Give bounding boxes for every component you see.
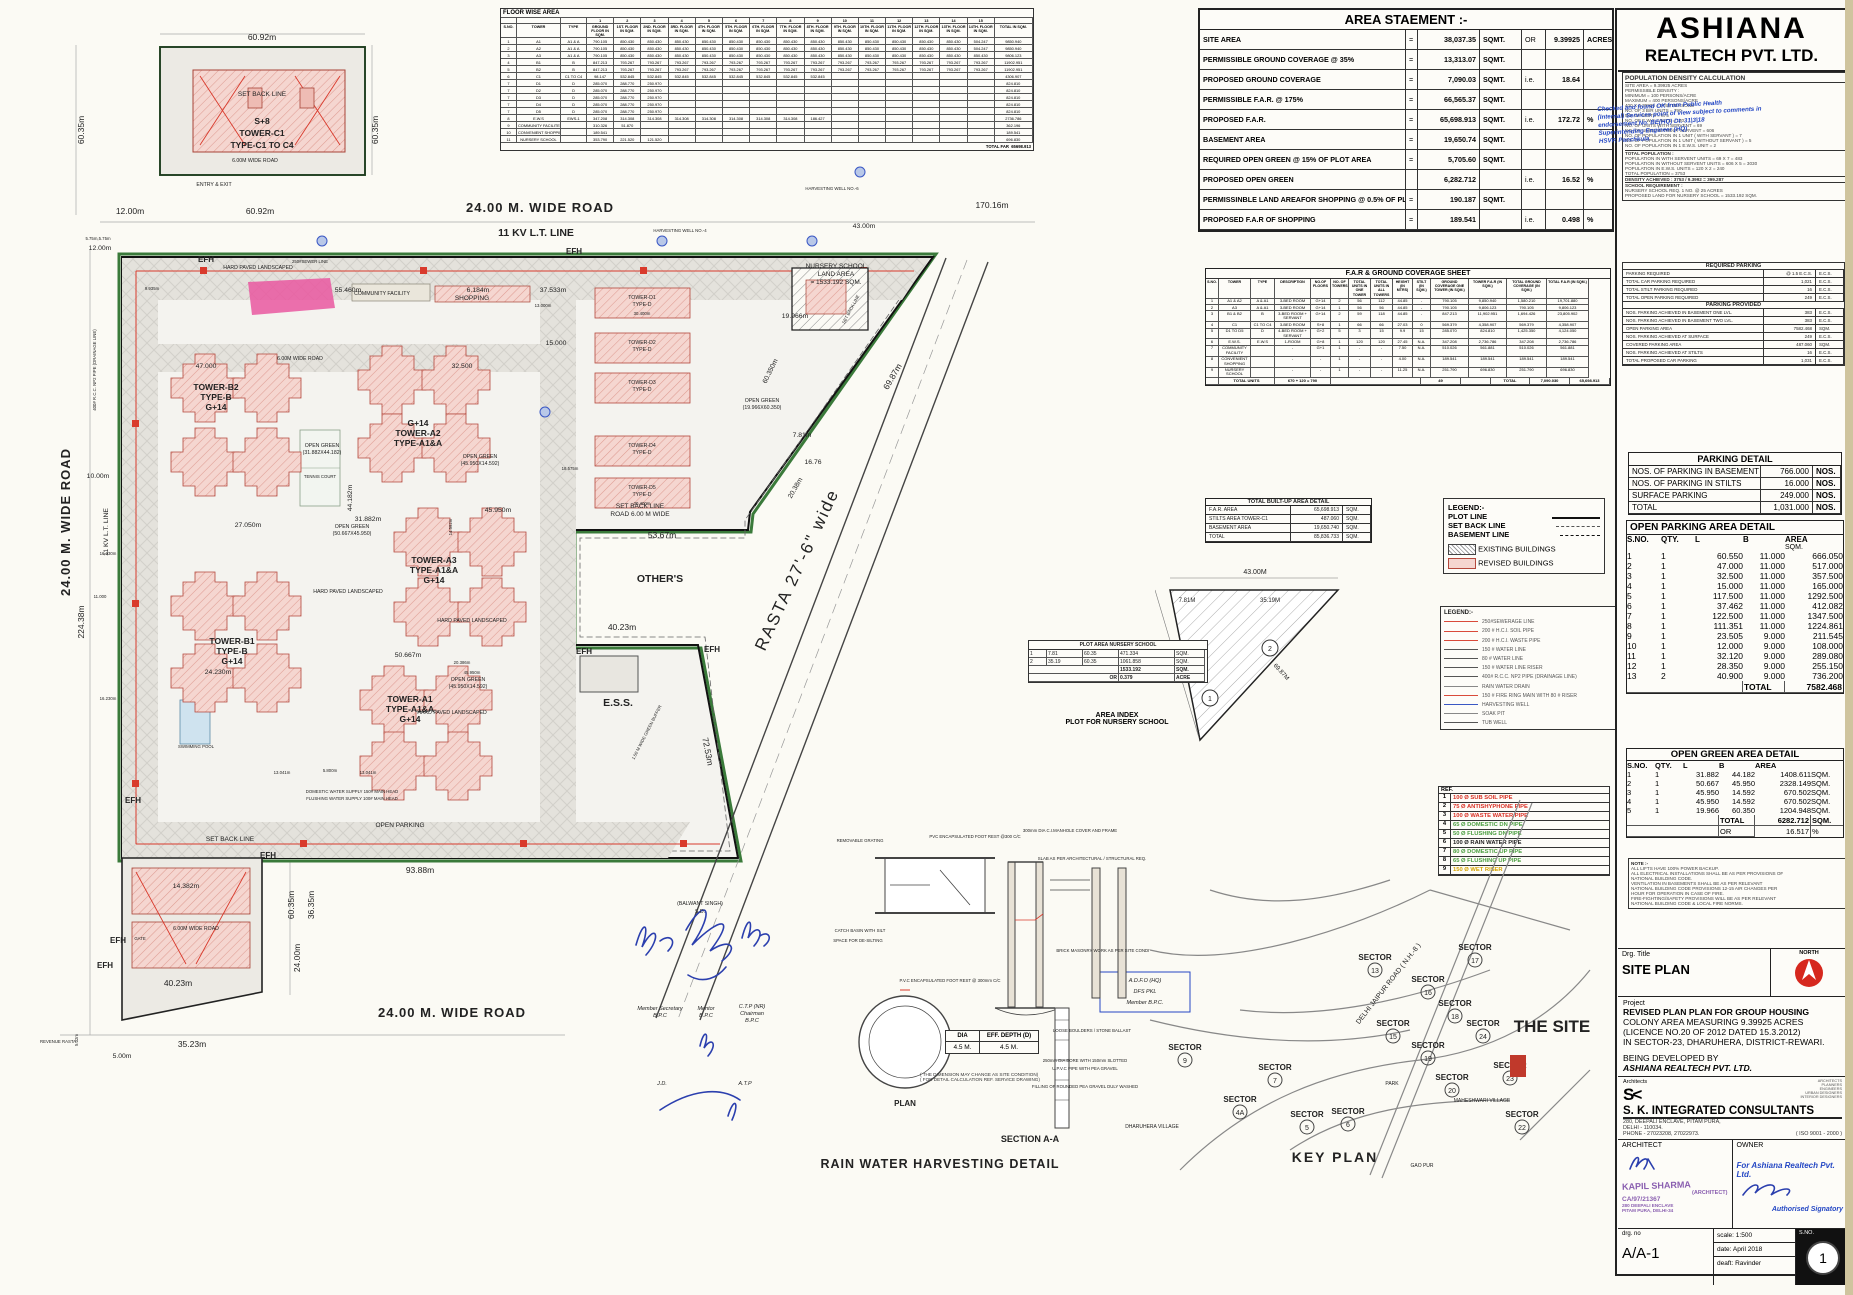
cell: 15: [1413, 329, 1431, 340]
site-label: TYPE-B: [216, 646, 247, 656]
cell: 793.267: [669, 66, 696, 73]
cell: [1029, 666, 1119, 674]
cell: 1: [1661, 621, 1695, 631]
cell: B: [561, 66, 587, 73]
cell: [968, 136, 995, 143]
rwh-label: REMOVABLE GRATING: [837, 838, 885, 843]
cell: 517.000: [1785, 561, 1843, 571]
row-percent-unit: ACRES: [1584, 30, 1612, 49]
sector-number: 6: [1346, 1122, 1350, 1129]
site-label: G+14: [423, 575, 444, 585]
cell: 850.430: [723, 45, 750, 52]
cell: [805, 101, 832, 108]
cell: [805, 108, 832, 115]
cell: [913, 115, 940, 122]
sector: SECTOR 4A: [1223, 1095, 1256, 1119]
cell: 1: [1655, 788, 1683, 797]
legend-row: PLOT LINE: [1448, 512, 1600, 521]
legend-label: 150 # WATER LINE RISER: [1482, 665, 1543, 671]
site-label: 24.00 M. WIDE ROAD: [58, 448, 73, 596]
sector-word: SECTOR: [1376, 1019, 1409, 1028]
cell: 850.430: [614, 52, 641, 59]
site-label: 250#SEWER LINE: [292, 259, 328, 264]
row-value: @ 1.5 E.C.S.: [1764, 270, 1816, 277]
draft-value: Ravinder: [1735, 1260, 1761, 1267]
site-label: Mentor: [697, 1006, 715, 1012]
cell: 793.267: [696, 59, 723, 66]
row-label: PARKING REQUIRED: [1623, 270, 1764, 277]
cell: 189.541: [587, 129, 614, 136]
site-label: 30.400m: [634, 311, 651, 316]
cell: [1206, 378, 1219, 384]
cell: 793.267: [696, 66, 723, 73]
open-green-table: OPEN GREEN AREA DETAIL S.NO.QTY.LBAREA 1…: [1626, 748, 1844, 838]
cell: 850.430: [859, 52, 886, 59]
table-header: S.NO.TOWERTYPEGROUND FLOOR IN SQM.1ST. F…: [501, 24, 1033, 38]
site-label: TOWER-D4: [628, 443, 656, 449]
header-cell: QTY.: [1661, 535, 1695, 544]
legend-swatch: [1444, 621, 1478, 622]
cell: 736.200: [1785, 671, 1843, 681]
cell: -: [1311, 368, 1331, 379]
cell: 850.430: [886, 52, 913, 59]
cell: A1 & A: [561, 38, 587, 45]
cell: 189.541: [1547, 357, 1589, 368]
site-label: B.P.C: [653, 1013, 667, 1019]
cell: [940, 129, 967, 136]
cell: -: [1371, 357, 1393, 368]
cell: 189.541: [995, 129, 1033, 136]
cell: 850.430: [614, 38, 641, 45]
cell: [561, 122, 587, 129]
sector: SECTOR 22: [1505, 1110, 1538, 1134]
table-row: PERMISSIBLE F.A.R. @ 175% = 66,565.37 SQ…: [1200, 90, 1612, 110]
table-row: TOTAL STILT PARKING REQUIRED16E.C.S.: [1623, 286, 1844, 294]
row-percent-unit: [1584, 70, 1612, 89]
cell: 2: [1627, 561, 1661, 571]
row-label: PROPOSED OPEN GREEN: [1200, 170, 1406, 189]
cell: 32.120: [1695, 651, 1743, 661]
cell: EWS-1: [561, 115, 587, 122]
site-label: EFH: [566, 247, 582, 256]
site-label: EFH: [110, 936, 126, 945]
cell: [696, 87, 723, 94]
sector-word: SECTOR: [1223, 1095, 1256, 1104]
cell: A1 & A: [561, 52, 587, 59]
rwh-label: SLAB AS PER ARCHITECTURAL / STRUCTURAL R…: [1038, 856, 1147, 861]
site-label: 20.38m: [787, 476, 805, 499]
total-label: TOTAL: [1719, 815, 1755, 826]
cell: 44.85: [1393, 311, 1413, 322]
scale-label: scale:: [1717, 1232, 1734, 1239]
table-row: 11 31.88244.182 1408.611SQM.: [1627, 770, 1843, 779]
cell: [940, 80, 967, 87]
cell: 532.845: [805, 73, 832, 80]
dim-label: 7.81M: [1179, 598, 1196, 604]
row-value: 65,698.913: [1418, 110, 1480, 129]
architect-stamp-reg: CA/97/21367: [1622, 1196, 1728, 1203]
place-label: GAO PUR: [1410, 1163, 1433, 1169]
project-line: COLONY AREA MEASURING 9.39925 ACRES: [1623, 1017, 1842, 1027]
table-row: SURFACE PARKING249.000NOS.: [1629, 490, 1841, 502]
cell: CONVENIENT SHOPPING: [1219, 357, 1251, 368]
cell: [886, 136, 913, 143]
cell: 59: [1349, 311, 1371, 322]
row-unit: SQM.: [1343, 524, 1371, 532]
cell: [1251, 346, 1275, 357]
cell: =: [1406, 90, 1418, 109]
site-label: G+14: [407, 418, 428, 428]
site-label: 50.667m: [395, 652, 422, 659]
cell: 1: [1655, 779, 1683, 788]
cell: 824.810: [995, 80, 1033, 87]
site-label: HARVESTING WELL NO.-4: [653, 228, 707, 233]
sector-word: SECTOR: [1435, 1073, 1468, 1082]
row-unit: [1480, 170, 1522, 189]
site-label: 12.00m: [89, 245, 112, 252]
cell: SQM.: [1811, 770, 1843, 779]
cell: 850.430: [805, 38, 832, 45]
cell: [940, 73, 967, 80]
cell: D5: [517, 108, 561, 115]
site-label: 19.966m: [782, 313, 809, 320]
cell: 211.545: [1785, 631, 1843, 641]
header-cell: L: [1683, 761, 1719, 770]
header-cell: NO. OF TOWERS: [1331, 279, 1349, 299]
cell: 357.500: [1785, 571, 1843, 581]
site-label: 43.00m: [853, 223, 876, 230]
cell: 793.267: [886, 66, 913, 73]
cell: [968, 101, 995, 108]
cell: C1 TO C4: [561, 73, 587, 80]
total-value: 6282.712: [1755, 815, 1811, 826]
cell: B1 & B2: [1219, 311, 1251, 322]
cell: =: [1406, 190, 1418, 209]
cell: 1224.861: [1785, 621, 1843, 631]
cell: D: [561, 108, 587, 115]
table-row: SITE AREA = 38,037.35 SQMT. OR 9.39925 A…: [1200, 30, 1612, 50]
legend-label: SOAK PIT: [1482, 711, 1505, 717]
row-label: TOTAL OPEN PARKING REQUIRED: [1623, 294, 1764, 301]
cell: 850.430: [859, 45, 886, 52]
cell: 2: [1627, 779, 1655, 788]
header-cell: TOTAL UNITS IN ONE TOWER: [1349, 279, 1371, 299]
header-cell: 14TH. FLOOR IN SQM.: [968, 24, 995, 38]
cell: G+1: [1311, 346, 1331, 357]
site-label: RASTA 27'-6" wide: [751, 486, 843, 654]
dim-label: 69.87M: [1272, 663, 1290, 682]
site-label: 12.00m: [116, 206, 144, 216]
table-title: PLOT AREA NURSERY SCHOOL: [1029, 641, 1207, 650]
cell: -: [1371, 368, 1393, 379]
table-body: PARKING REQUIRED@ 1.5 E.C.S.E.C.S. TOTAL…: [1623, 270, 1844, 302]
cell: -: [1349, 368, 1371, 379]
parking-detail-table: PARKING DETAIL NOS. OF PARKING IN BASEME…: [1628, 452, 1842, 515]
site-label: J.D.: [656, 1081, 667, 1087]
sector: SECTOR 6: [1331, 1107, 1364, 1131]
cell: =: [1406, 210, 1418, 229]
table-row: 101 12.0009.000 108.000: [1627, 641, 1843, 651]
sector-number: 13: [1371, 968, 1379, 975]
cell: 314.308: [669, 115, 696, 122]
cell: [805, 80, 832, 87]
cell: 790.105: [587, 52, 614, 59]
cell: 561.881: [1469, 346, 1507, 357]
north-arrow-icon: [1792, 956, 1826, 990]
cell: [940, 108, 967, 115]
cell: 1: [501, 38, 517, 45]
cell: 285.070: [587, 87, 614, 94]
cell: 2: [1331, 311, 1349, 322]
total-label: TOTAL: [1743, 681, 1785, 693]
table-row: NOS. PARKING ACHIEVED AT STILTS16E.C.S.: [1623, 349, 1844, 357]
cell: [777, 108, 804, 115]
required-parking-panel: REQUIRED PARKING PARKING REQUIRED@ 1.5 E…: [1622, 262, 1845, 366]
cell: [968, 122, 995, 129]
row-label: TOTAL: [1206, 533, 1291, 541]
cell: 15.000: [1695, 581, 1743, 591]
table-row: 9COMMUNITY FACILITES 310.326 51.870 362.…: [501, 122, 1033, 129]
cell: B: [1251, 311, 1275, 322]
cell: 850.430: [777, 52, 804, 59]
cell: [859, 136, 886, 143]
cell: [913, 108, 940, 115]
cell: 314.308: [641, 115, 668, 122]
cell: 850.430: [750, 52, 777, 59]
site-label: TOWER-A3: [411, 555, 456, 565]
site-label: 60.35m: [286, 891, 296, 919]
header-cell: TOTAL F.A.R (IN SQM.): [1547, 279, 1589, 299]
legend-row: 80 # WATER LINE: [1444, 656, 1612, 662]
header-cell: DESCRIPTION: [1275, 279, 1311, 299]
cell: [723, 80, 750, 87]
key-plan: DELHI JAIPUR ROAD ( N.H.-8 ) SECTOR 13 S…: [1090, 770, 1615, 1180]
cell: 7: [501, 87, 517, 94]
cell: [832, 136, 859, 143]
cell: 850.430: [669, 38, 696, 45]
legend-row: SOAK PIT: [1444, 711, 1612, 717]
text-line: NO. OF POPULATION IN 1 E.W.S. UNIT = 2: [1625, 143, 1846, 148]
rwh-label: 300mm DIA C.I.MANHOLE COVER AND FRAME: [1023, 828, 1117, 833]
table-title: F.A.R & GROUND COVERAGE SHEET: [1206, 269, 1610, 279]
cell: 288.770: [614, 87, 641, 94]
site-label: OPEN GREEN: [451, 677, 486, 683]
cell: 793.267: [913, 66, 940, 73]
cell: 850.430: [723, 52, 750, 59]
site-label: TENNIS COURT: [304, 474, 337, 479]
cell: 118: [1371, 311, 1393, 322]
cell: [859, 94, 886, 101]
site-label: 16.230m: [100, 696, 117, 701]
key-plan-caption: KEY PLAN: [1292, 1149, 1379, 1165]
header-cell: TOWER: [1219, 279, 1251, 299]
row-percent: 9.39925: [1546, 30, 1584, 49]
legend-title: LEGEND:-: [1444, 610, 1612, 616]
cell: =: [1406, 70, 1418, 89]
header-cell: 12TH. FLOOR IN SQM.: [913, 24, 940, 38]
cell: 790.105: [587, 38, 614, 45]
table-total: TOTAL FAR 65698.913: [501, 143, 1033, 150]
cell: 310.326: [587, 122, 614, 129]
cell: 4306.907: [995, 73, 1033, 80]
cell: 40.900: [1695, 671, 1743, 681]
site-label: S.D.: [695, 909, 705, 915]
row-percent: 16.52: [1546, 170, 1584, 189]
cell: [940, 101, 967, 108]
cell: [832, 115, 859, 122]
table-total: TOTAL 7582.468: [1627, 681, 1843, 693]
site-label: OPEN PARKING: [375, 822, 424, 829]
cell: [669, 80, 696, 87]
table-row: PROPOSED OPEN GREEN 6,282.712 i.e. 16.52…: [1200, 170, 1612, 190]
cell: 3-BED ROOM + SERVANT: [1275, 311, 1311, 322]
cell: 7: [1627, 611, 1661, 621]
legend-label: TUB WELL: [1482, 720, 1507, 726]
site-label: 13.041m: [274, 770, 291, 775]
site-label: TOWER-A2: [395, 428, 440, 438]
header-cell: 5TH. FLOOR IN SQM.: [723, 24, 750, 38]
cell: [886, 122, 913, 129]
site-label: 30.400m: [634, 501, 651, 506]
cell: [940, 94, 967, 101]
table-row: TOTAL CAR PARKING REQUIRED1,021E.C.S.: [1623, 278, 1844, 286]
cell: 60.350: [1719, 806, 1755, 815]
developer-label: BEING DEVELOPED BY: [1623, 1053, 1842, 1063]
cell: 11.000: [1743, 601, 1785, 611]
site-label: HARD PAVED LANDSCAPED: [223, 265, 293, 271]
cell: [968, 94, 995, 101]
site-label: LAND AREA: [818, 271, 855, 278]
cell: 7.50: [1393, 346, 1413, 357]
table-row: 121 28.3509.000 255.150: [1627, 661, 1843, 671]
cell: 45.950: [1683, 788, 1719, 797]
cell: [750, 94, 777, 101]
cell: 1347.500: [1785, 611, 1843, 621]
cell: [723, 129, 750, 136]
cell: 824.810: [995, 108, 1033, 115]
cell: 532.845: [614, 73, 641, 80]
cell: 793.267: [805, 59, 832, 66]
cell: 251.790: [1431, 368, 1469, 379]
cell: [886, 80, 913, 87]
cell: 670.502: [1755, 797, 1811, 806]
header-cell: STILT (IN SQM.): [1413, 279, 1431, 299]
site-label: EFH: [198, 255, 214, 264]
site-label: 13.041m: [360, 770, 377, 775]
site-label: SWIMMING POOL: [178, 744, 215, 749]
legend-row: 400# R.C.C. NP2 PIPE (DRAINAGE LINE): [1444, 674, 1612, 680]
cell: 532.845: [696, 73, 723, 80]
site-label: SET BACK LINE: [238, 91, 287, 98]
table-body: 1A1 & A2 A & A13-BED ROOM G+142 56112 44…: [1206, 299, 1610, 379]
cell: [723, 122, 750, 129]
note-line: ( FOR DETAIL CALCULATION REF. SERVICE DR…: [920, 1077, 1080, 1082]
cell: 793.267: [614, 59, 641, 66]
cell: [968, 80, 995, 87]
architect-label: ARCHITECT: [1622, 1142, 1728, 1149]
cell: [1522, 190, 1546, 209]
signature-row: ARCHITECT KAPIL SHARMA (ARCHITECT) CA/97…: [1618, 1140, 1847, 1229]
cell: [614, 129, 641, 136]
header-cell: DIA: [946, 1031, 980, 1041]
cell: TOTAL UNITS: [1219, 378, 1275, 384]
cell: [750, 87, 777, 94]
cell: 9.000: [1743, 651, 1785, 661]
site-label: 9.935m: [145, 286, 160, 291]
cell: 850.430: [750, 45, 777, 52]
date-label: date:: [1717, 1246, 1731, 1253]
cell: 6: [1627, 601, 1661, 611]
cell: 28.350: [1695, 661, 1743, 671]
row-unit: NOS.: [1813, 502, 1841, 513]
legend-label: 80 # WATER LINE: [1482, 656, 1523, 662]
site-label: 40.23m: [164, 978, 192, 988]
cell: 7: [501, 101, 517, 108]
table-or-row: OR 16.517%: [1627, 826, 1843, 837]
table-row: 7COMMUNITY FACILITY - G+11 -- 7.50N.A. 5…: [1206, 346, 1610, 357]
cell: 11.000: [1743, 611, 1785, 621]
cell: 510.026: [1431, 346, 1469, 357]
cell: 850.430: [696, 45, 723, 52]
site-marker: [1510, 1055, 1526, 1077]
site-label: TYPE-D: [632, 347, 651, 353]
cell: 9: [1206, 368, 1219, 379]
row-label: COVERED PARKING AREA: [1623, 341, 1764, 348]
far-ground-coverage-table: F.A.R & GROUND COVERAGE SHEET S.NO.TOWER…: [1205, 268, 1611, 386]
legend-swatch: [1444, 686, 1478, 687]
site-label: 11.000: [94, 594, 107, 599]
cell: 7: [501, 80, 517, 87]
table-row: 71 122.50011.000 1347.500: [1627, 611, 1843, 621]
cell: [886, 108, 913, 115]
header-cell: AREA: [1785, 535, 1843, 544]
row-unit: SQMT.: [1480, 30, 1522, 49]
header-cell: 2ND. FLOOR IN SQM.: [641, 24, 668, 38]
legend-row: REVISED BUILDINGS: [1448, 558, 1600, 569]
row-percent: 18.64: [1546, 70, 1584, 89]
header-cell: 10TH. FLOOR IN SQM.: [859, 24, 886, 38]
sector-number: 22: [1518, 1125, 1526, 1132]
architect-signature: [1622, 1149, 1662, 1175]
cell: 2: [1029, 658, 1047, 666]
cell: -: [1275, 346, 1311, 357]
site-label: 15.000: [546, 340, 567, 347]
site-label: 24.230m: [205, 669, 232, 676]
site-label: GATE: [134, 936, 146, 941]
row-value: 189.541: [1418, 210, 1480, 229]
site-label: TYPE-D: [632, 492, 651, 498]
cell: NURSERY SCHOOL: [517, 136, 561, 143]
sector: SECTOR 9: [1168, 1043, 1201, 1067]
cell: SQM.: [1175, 658, 1205, 666]
site-label: 32.500: [452, 363, 473, 370]
date-value: April 2018: [1733, 1246, 1762, 1253]
cell: 1: [1661, 601, 1695, 611]
site-label: 36.35m: [306, 891, 316, 919]
site-label: 400# R.C.C. NP2 PIPE (DRAINAGE LINE): [92, 329, 97, 411]
cell: 847.213: [1431, 311, 1469, 322]
cell: 0.379: [1119, 674, 1175, 682]
project-line: REVISED PLAN PLAN FOR GROUP HOUSING: [1623, 1007, 1809, 1017]
cell: 111.351: [1695, 621, 1743, 631]
legend-swatch: [1444, 695, 1478, 696]
site-label: 93.88m: [406, 865, 434, 875]
cell: -: [1349, 357, 1371, 368]
row-unit: E.C.S.: [1816, 286, 1844, 293]
table-row: OPEN PARKING AREA7582.468SQM.: [1623, 325, 1844, 333]
cell: 44.182: [1719, 770, 1755, 779]
row-unit: SQMT.: [1480, 110, 1522, 129]
